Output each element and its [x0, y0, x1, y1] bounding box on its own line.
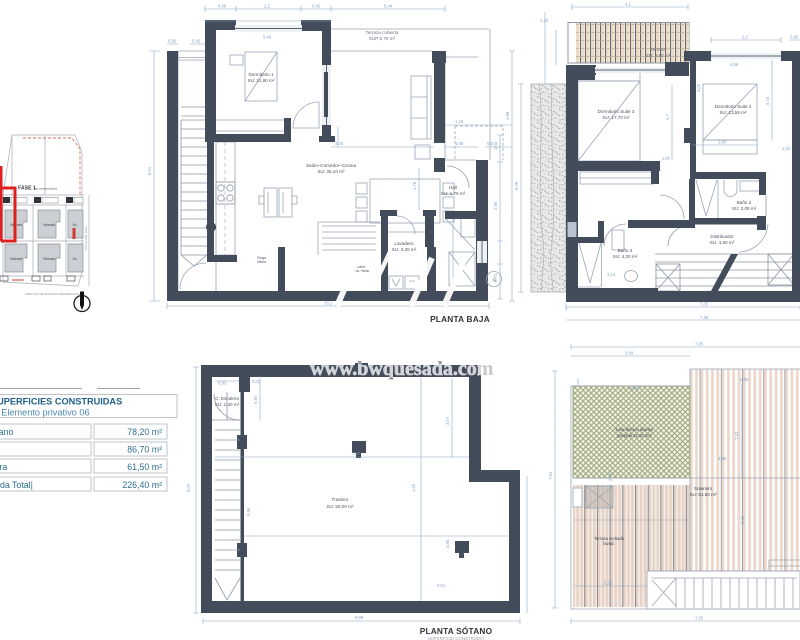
svg-text:Dormitorio 1: Dormitorio 1	[248, 72, 273, 77]
svg-text:1,08: 1,08	[455, 141, 464, 146]
svg-text:SU: 61,50 m²: SU: 61,50 m²	[689, 492, 717, 497]
svg-text:3,89: 3,89	[630, 386, 639, 391]
svg-text:0,85: 0,85	[790, 35, 799, 40]
svg-text:Escalera: Escalera	[0, 462, 7, 472]
svg-text:(pérgola 21,50 m²): (pérgola 21,50 m²)	[617, 433, 652, 438]
svg-text:(en construcción): (en construcción)	[34, 187, 57, 191]
svg-text:1,23: 1,23	[540, 18, 549, 23]
svg-text:2,2: 2,2	[742, 35, 748, 40]
svg-text:226,40 m²: 226,40 m²	[122, 480, 162, 490]
svg-text:78,20 m²: 78,20 m²	[127, 427, 162, 437]
svg-text:61,50 m²: 61,50 m²	[127, 462, 162, 472]
svg-text:SU: 1,40 m²: SU: 1,40 m²	[215, 402, 240, 407]
svg-text:0,45: 0,45	[192, 39, 201, 44]
svg-text:3,88: 3,88	[718, 456, 727, 461]
svg-text:SU: 9,60 m²: SU: 9,60 m²	[646, 53, 671, 58]
svg-text:Trastero: Trastero	[332, 497, 349, 502]
svg-text:5,15: 5,15	[765, 96, 770, 105]
svg-text:7,27: 7,27	[352, 451, 361, 456]
svg-text:PLANTA SÓTANO: PLANTA SÓTANO	[420, 625, 493, 636]
svg-text:4,88: 4,88	[505, 111, 510, 120]
svg-text:7,43: 7,43	[734, 431, 739, 440]
svg-text:SU: 17,70 m²: SU: 17,70 m²	[602, 115, 630, 120]
svg-text:1,02: 1,02	[782, 146, 791, 151]
svg-text:Solarium: Solarium	[694, 486, 712, 491]
svg-text:4j: 4j	[492, 277, 496, 282]
svg-text:SU: 11,90 m²: SU: 11,90 m²	[248, 78, 275, 83]
svg-text:2,2: 2,2	[264, 4, 270, 9]
svg-text:5,44: 5,44	[263, 35, 272, 40]
svg-text:7,05: 7,05	[700, 302, 709, 307]
svg-text:SU: 4,60 m²: SU: 4,60 m²	[710, 240, 735, 245]
svg-text:Terraza cubierta: Terraza cubierta	[366, 30, 399, 35]
svg-text:0,95: 0,95	[168, 39, 177, 44]
svg-text:0,99: 0,99	[625, 351, 634, 356]
svg-text:0,92: 0,92	[253, 395, 258, 404]
svg-text:Salón–Comedor–Cocina: Salón–Comedor–Cocina	[306, 163, 356, 168]
svg-text:Baño 3: Baño 3	[618, 248, 633, 253]
svg-text:5,20: 5,20	[604, 581, 613, 586]
svg-text:5,06: 5,06	[740, 377, 749, 382]
svg-text:SU: 4,20 m²: SU: 4,20 m²	[613, 254, 638, 259]
svg-text:3,30: 3,30	[335, 141, 344, 146]
svg-text:8,61: 8,61	[437, 583, 446, 588]
svg-text:16,1: 16,1	[324, 301, 333, 306]
svg-text:SUPERFICIE CONSTRUIDA: SUPERFICIE CONSTRUIDA	[428, 636, 485, 640]
svg-text:2,05: 2,05	[608, 472, 613, 481]
svg-text:2,95: 2,95	[493, 201, 498, 210]
svg-text:0,93: 0,93	[218, 381, 227, 386]
svg-text:Sótano: Sótano	[0, 427, 13, 437]
svg-text:PLANTA BAJA: PLANTA BAJA	[430, 314, 490, 324]
svg-text:Lavadero: Lavadero	[394, 241, 414, 246]
svg-text:9,98: 9,98	[355, 615, 364, 620]
svg-text:1,07: 1,07	[662, 156, 671, 161]
svg-text:Terraza: Terraza	[650, 47, 666, 52]
svg-text:SU: 3,05 m²: SU: 3,05 m²	[732, 206, 757, 211]
svg-text:5,44: 5,44	[384, 4, 393, 9]
svg-text:lavad.: lavad.	[603, 541, 614, 546]
svg-text:4,86: 4,86	[730, 62, 739, 67]
svg-text:2,14: 2,14	[607, 272, 616, 277]
svg-text:Dormitorio Suite 3: Dormitorio Suite 3	[598, 109, 635, 114]
svg-text:2. Elemento privativo 06: 2. Elemento privativo 06	[0, 408, 90, 418]
svg-text:1,03: 1,03	[493, 141, 498, 150]
svg-text:1,00: 1,00	[718, 140, 727, 145]
svg-text:Hall: Hall	[449, 185, 457, 190]
svg-text:1,23: 1,23	[455, 119, 464, 124]
svg-text:8,07: 8,07	[186, 483, 191, 492]
svg-text:C. Escalera: C. Escalera	[215, 396, 239, 401]
svg-text:Vivienda: Vivienda	[43, 257, 55, 261]
svg-text:3,08: 3,08	[740, 515, 745, 524]
svg-text:7,36: 7,36	[700, 315, 709, 320]
svg-text:AREA 100 DE MANZANA RESIDENCIA: AREA 100 DE MANZANA RESIDENCIAL	[25, 292, 80, 296]
svg-text:Vivienda: Vivienda	[43, 223, 55, 227]
svg-text:0,45: 0,45	[312, 4, 321, 9]
svg-text:0,03: 0,03	[252, 379, 261, 384]
svg-text:Distribuidor: Distribuidor	[710, 234, 734, 239]
svg-text:SU: 13,55 m²: SU: 13,55 m²	[719, 110, 747, 115]
svg-text:4,7: 4,7	[665, 114, 670, 120]
svg-text:7,05: 7,05	[695, 616, 704, 621]
svg-text:ida Total|: ida Total|	[0, 480, 33, 490]
svg-text:0,96: 0,96	[218, 4, 227, 9]
svg-text:4,1: 4,1	[625, 2, 631, 7]
svg-text:5,96: 5,96	[246, 507, 251, 516]
svg-text:86,70 m²: 86,70 m²	[127, 445, 162, 455]
svg-text:8,01: 8,01	[147, 166, 152, 175]
svg-text:SU: 3,20 m²: SU: 3,20 m²	[392, 247, 417, 252]
svg-text:1,43: 1,43	[411, 483, 416, 492]
svg-text:Dormitorio Suite 2: Dormitorio Suite 2	[715, 104, 752, 109]
svg-text:CALLE DEL MAR: CALLE DEL MAR	[84, 226, 88, 250]
svg-text:Viv.: Viv.	[72, 223, 77, 227]
svg-text:3,00: 3,00	[696, 83, 701, 92]
svg-text:8,09: 8,09	[514, 181, 519, 190]
svg-text:7,64: 7,64	[548, 471, 553, 480]
svg-text:3,86: 3,86	[445, 539, 450, 548]
svg-text:Márm.: Márm.	[257, 260, 267, 264]
svg-text:SUPERFICIES CONSTRUIDAS: SUPERFICIES CONSTRUIDAS	[0, 397, 122, 407]
svg-text:Baño 2: Baño 2	[737, 200, 752, 205]
svg-text:SU: 35,10 m²: SU: 35,10 m²	[317, 169, 345, 174]
svg-text:Viv.: Viv.	[72, 257, 77, 261]
svg-text:zona técnica abierta: zona técnica abierta	[615, 427, 653, 432]
svg-text:SU: 1,70 m²: SU: 1,70 m²	[441, 191, 466, 196]
svg-text:SU: 59,00 m²: SU: 59,00 m²	[326, 504, 354, 509]
svg-text:Vivienda: Vivienda	[10, 257, 22, 261]
svg-text:SUP 5,76 m²: SUP 5,76 m²	[369, 36, 396, 41]
svg-text:3,57: 3,57	[445, 416, 450, 425]
svg-text:7,05: 7,05	[695, 342, 704, 347]
svg-text:1,78: 1,78	[412, 181, 417, 190]
